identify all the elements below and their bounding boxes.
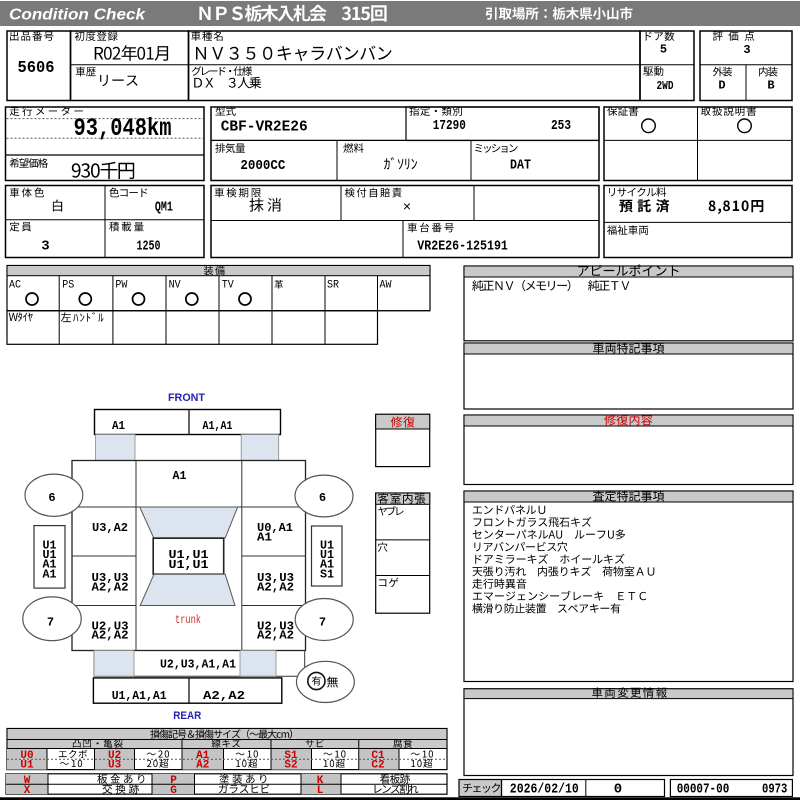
svg-text:2000CC: 2000CC [240, 158, 286, 174]
svg-text:A2,A2: A2,A2 [92, 582, 129, 595]
svg-text:D: D [718, 79, 725, 93]
svg-text:U1: U1 [20, 759, 34, 771]
svg-text:REAR: REAR [173, 710, 201, 722]
svg-text:3: 3 [41, 239, 49, 255]
svg-text:A2,A2: A2,A2 [257, 630, 294, 643]
svg-text:AC: AC [9, 280, 21, 292]
svg-text:6: 6 [319, 491, 326, 505]
svg-text:5606: 5606 [18, 59, 55, 78]
svg-text:A1: A1 [43, 568, 57, 581]
svg-text:DAT: DAT [510, 158, 531, 174]
svg-text:1250: 1250 [137, 239, 161, 255]
svg-text:S2: S2 [284, 759, 297, 771]
svg-text:2WD: 2WD [657, 79, 674, 93]
svg-text:U3: U3 [108, 759, 122, 771]
svg-text:A1: A1 [112, 420, 125, 433]
svg-text:FRONT: FRONT [168, 392, 205, 404]
svg-text:U1,U1: U1,U1 [169, 559, 209, 572]
svg-text:A1,A1: A1,A1 [203, 420, 233, 433]
svg-text:X: X [24, 785, 31, 797]
svg-text:A2,A2: A2,A2 [203, 690, 245, 703]
svg-text:6: 6 [48, 491, 55, 505]
svg-text:trunk: trunk [175, 613, 201, 627]
svg-text:U1,A1,A1: U1,A1,A1 [112, 690, 167, 703]
svg-text:C2: C2 [371, 759, 384, 771]
svg-text:253: 253 [551, 118, 571, 134]
svg-text:5: 5 [660, 43, 667, 57]
svg-text:7: 7 [319, 616, 326, 630]
svg-text:PS: PS [62, 280, 74, 292]
svg-text:L: L [317, 785, 324, 797]
svg-text:A1: A1 [257, 532, 272, 545]
svg-text:G: G [170, 785, 177, 797]
svg-text:TV: TV [222, 280, 234, 292]
svg-text:Condition Check: Condition Check [9, 7, 146, 24]
svg-text:00007-00: 00007-00 [677, 782, 730, 798]
svg-text:A1: A1 [173, 470, 187, 483]
svg-text:×: × [403, 198, 411, 214]
svg-text:0: 0 [614, 782, 622, 798]
svg-text:SR: SR [327, 280, 339, 292]
svg-text:U3,A2: U3,A2 [92, 522, 128, 535]
svg-text:B: B [767, 79, 774, 93]
svg-text:VR2E26-125191: VR2E26-125191 [417, 239, 508, 255]
svg-text:U2,U3,A1,A1: U2,U3,A1,A1 [160, 659, 236, 672]
svg-text:PW: PW [115, 280, 127, 292]
svg-text:3: 3 [743, 43, 750, 57]
svg-text:0973: 0973 [762, 782, 787, 798]
svg-text:NV: NV [169, 280, 181, 292]
svg-text:CBF-VR2E26: CBF-VR2E26 [221, 119, 308, 136]
svg-text:7: 7 [47, 616, 54, 630]
svg-text:A2: A2 [196, 759, 209, 771]
svg-text:2026/02/10: 2026/02/10 [510, 782, 579, 798]
svg-text:A2,A2: A2,A2 [257, 582, 294, 595]
svg-text:17290: 17290 [433, 118, 466, 134]
svg-text:AW: AW [380, 280, 392, 292]
svg-text:A2,A2: A2,A2 [92, 630, 129, 643]
svg-text:S1: S1 [320, 568, 334, 581]
svg-text:QM1: QM1 [155, 200, 173, 216]
